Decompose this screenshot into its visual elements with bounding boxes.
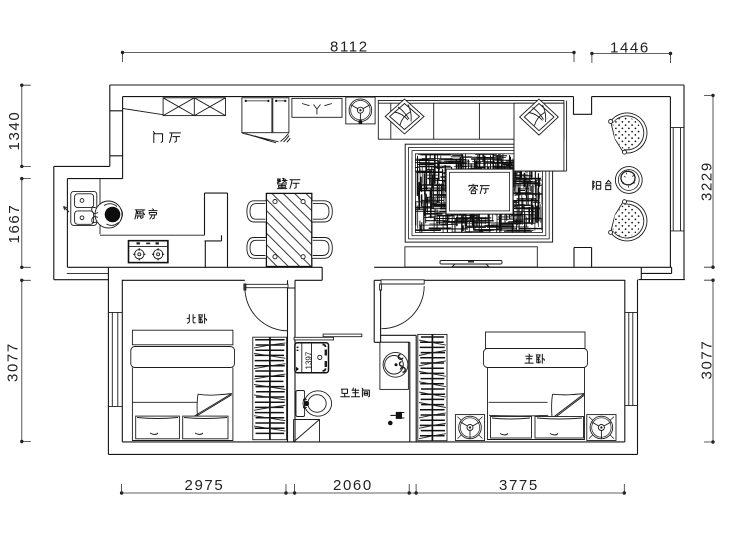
svg-text:3077: 3077 xyxy=(5,342,22,382)
svg-text:3775: 3775 xyxy=(499,477,539,494)
svg-text:2060: 2060 xyxy=(333,477,373,494)
svg-text:3077: 3077 xyxy=(699,340,716,380)
svg-text:1340: 1340 xyxy=(6,111,23,151)
svg-text:3229: 3229 xyxy=(699,161,716,201)
svg-text:1446: 1446 xyxy=(610,40,650,57)
svg-text:8112: 8112 xyxy=(330,39,369,56)
svg-text:2975: 2975 xyxy=(185,477,225,494)
svg-text:1667: 1667 xyxy=(6,204,23,244)
svg-text:1397: 1397 xyxy=(305,351,314,369)
